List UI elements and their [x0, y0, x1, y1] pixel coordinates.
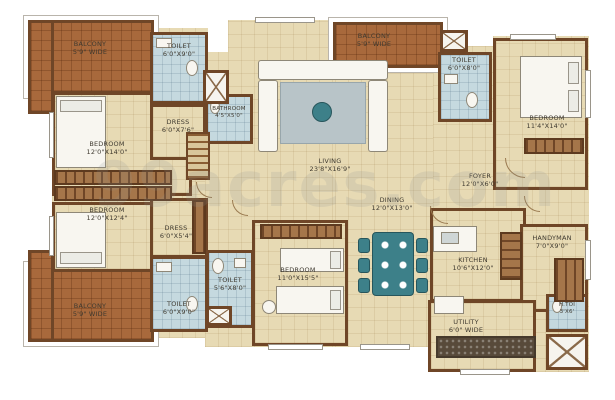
sofa-left-icon: [258, 80, 278, 152]
balcony-top-left-wing: [28, 20, 54, 114]
dining-chair-icon: [358, 278, 370, 293]
room-label-handyman: HANDYMAN7'0"X9'0": [517, 234, 587, 250]
window: [360, 344, 410, 350]
window: [510, 34, 556, 40]
wc-icon: [466, 92, 478, 108]
room-label-balcony-bottom-left: BALCONY5'9" WIDE: [55, 302, 125, 318]
window: [268, 344, 323, 350]
sofa-top-icon: [258, 60, 388, 80]
window: [49, 216, 54, 256]
room-label-kitchen: KITCHEN10'6"X12'0": [438, 256, 508, 272]
room-label-dining: DINING12'0"X13'0": [357, 196, 427, 212]
room-label-utility: UTILITY6'0" WIDE: [431, 318, 501, 334]
kitchen-sink-icon: [441, 232, 459, 244]
pillow-icon: [60, 252, 102, 264]
dining-table-icon: [372, 232, 414, 296]
duct-bottom-right-icon: [546, 334, 588, 370]
room-label-balcony-top-left: BALCONY5'9" WIDE: [55, 40, 125, 56]
lift-shaft-icon: [203, 70, 229, 104]
basin-icon: [444, 74, 458, 84]
dining-chair-icon: [416, 278, 428, 293]
sofa-right-icon: [368, 80, 388, 152]
room-label-living: LIVING23'8"X16'9": [295, 157, 365, 173]
room-label-bedroom-middle: BEDROOM11'0"X15'5": [263, 266, 333, 282]
room-label-balcony-top-right: BALCONY5'9" WIDE: [339, 32, 409, 48]
room-label-handyman-toilet: H.TOI3'X6': [546, 302, 588, 316]
dining-chair-icon: [416, 238, 428, 253]
window: [49, 112, 54, 158]
window: [585, 70, 591, 118]
balcony-bottom-left-wing: [28, 250, 54, 342]
pillow-icon: [60, 100, 102, 112]
stairs-icon: [186, 132, 210, 180]
pillow-icon: [568, 62, 579, 84]
wardrobe-left-lower-icon: [54, 186, 172, 201]
room-label-bathroom: BATHROOM4'5"X5'0": [206, 106, 252, 120]
pillow-icon: [568, 90, 579, 112]
room-label-toilet-top-right: TOILET6'0"X8'0": [434, 56, 494, 72]
dining-chair-icon: [416, 258, 428, 273]
wardrobe-top-right-icon: [524, 138, 584, 154]
pillow-icon: [330, 290, 341, 310]
dining-chair-icon: [358, 238, 370, 253]
wc-icon: [212, 258, 224, 274]
duct-middle-icon: [206, 306, 232, 326]
wardrobe-left-upper-icon: [54, 170, 172, 185]
wc-icon: [186, 60, 198, 76]
dining-chair-icon: [358, 258, 370, 273]
room-label-bedroom-left-upper: BEDROOM12'0"X14'0": [72, 140, 142, 156]
room-label-bedroom-left-lower: BEDROOM12'0"X12'4": [72, 206, 142, 222]
fridge-icon: [434, 296, 464, 314]
room-label-dress-left-lower: DRESS6'0"X5'4": [146, 224, 206, 240]
room-label-foyer: FOYER12'0"X6'0": [445, 172, 515, 188]
wardrobe-middle-icon: [260, 224, 342, 239]
window: [255, 17, 315, 23]
room-label-toilet-top-left: TOILET6'0"X9'0": [149, 42, 209, 58]
room-label-bedroom-top-right: BEDROOM11'4"X14'0": [512, 114, 582, 130]
stool-icon: [262, 300, 276, 314]
duct-top-right-icon: [440, 30, 468, 52]
room-label-toilet-middle: TOILET5'6"X8'0": [200, 276, 260, 292]
basin-icon: [234, 258, 246, 268]
basin-icon: [156, 262, 172, 272]
room-label-toilet-bottom-left: TOILET6'0"X9'0": [149, 300, 209, 316]
room-label-dress-top-left: DRESS6'0"X7'6": [148, 118, 208, 134]
floor-plan: BALCONY5'9" WIDE TOILET6'0"X9'0" DRESS6'…: [0, 0, 615, 400]
utility-counter: [436, 336, 536, 358]
window: [460, 369, 510, 375]
handyman-mat-icon: [554, 258, 584, 302]
coffee-table-icon: [312, 102, 332, 122]
